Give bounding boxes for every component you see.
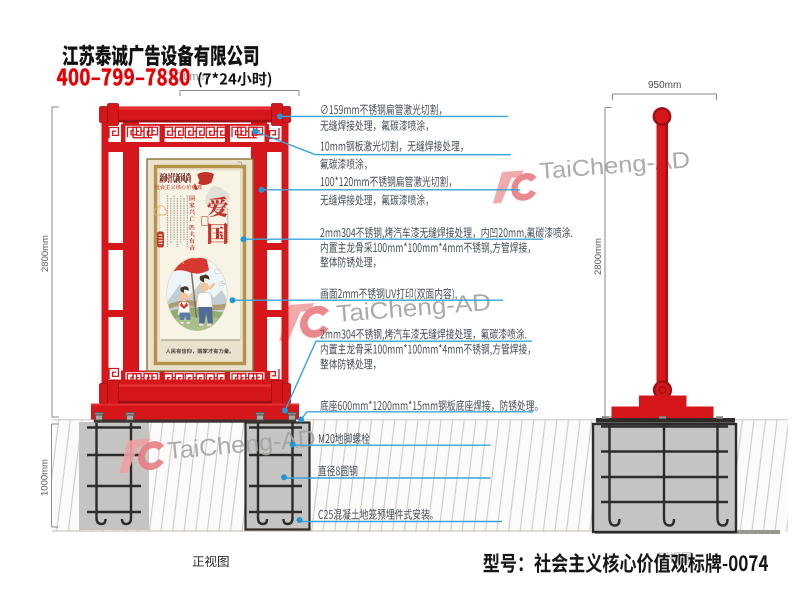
svg-text:950mm: 950mm xyxy=(648,80,681,91)
svg-text:2800mm: 2800mm xyxy=(40,235,51,272)
svg-text:1000mm: 1000mm xyxy=(40,459,51,496)
svg-text:2800mm: 2800mm xyxy=(593,238,604,275)
